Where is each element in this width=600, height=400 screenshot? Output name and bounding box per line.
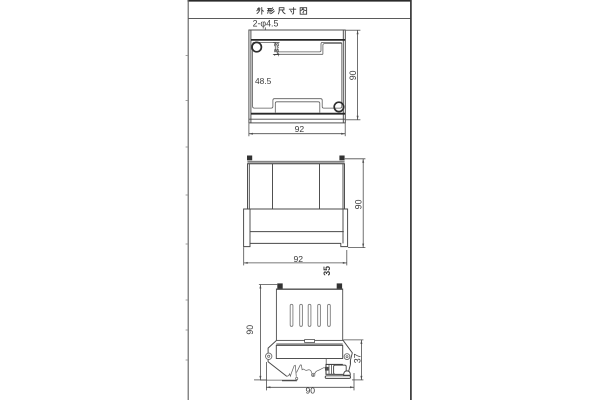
svg-text:90: 90 [354,199,364,209]
svg-text:37: 37 [353,353,363,363]
svg-text:92: 92 [295,124,305,134]
svg-text:90: 90 [306,385,316,395]
svg-text:2-φ4.5: 2-φ4.5 [253,18,279,28]
svg-text:13.3: 13.3 [272,43,281,57]
svg-text:48.5: 48.5 [255,76,272,86]
svg-text:92: 92 [294,254,304,264]
svg-text:90: 90 [245,325,255,335]
svg-text:35: 35 [322,266,332,276]
svg-text:90: 90 [348,70,358,80]
